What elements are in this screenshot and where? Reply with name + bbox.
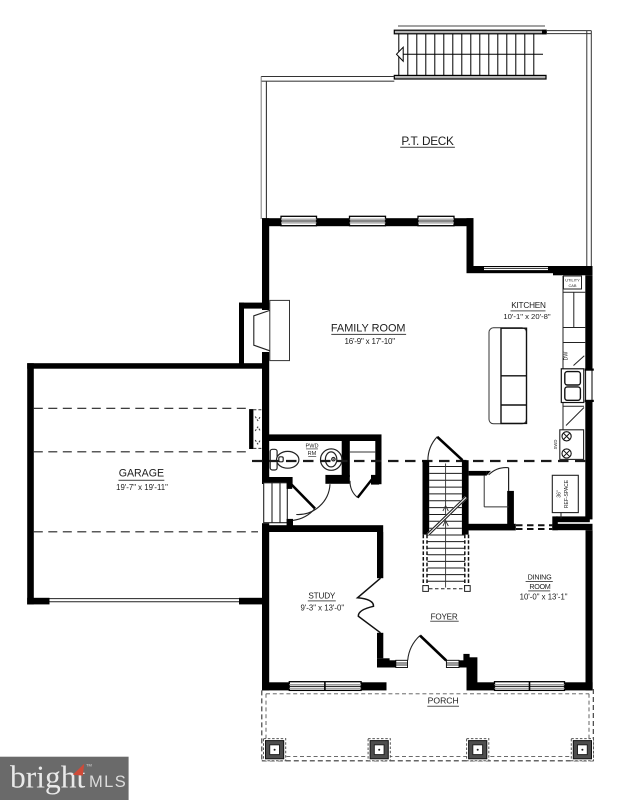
svg-text:PORCH: PORCH: [428, 696, 459, 706]
svg-text:P.T. DECK: P.T. DECK: [401, 134, 454, 148]
svg-text:bright: bright: [10, 760, 85, 795]
svg-text:19'-7" x 19'-11": 19'-7" x 19'-11": [116, 483, 168, 492]
svg-text:ROOM: ROOM: [529, 582, 550, 591]
svg-text:36": 36": [557, 490, 563, 498]
svg-text:10'-1" x 20'-8": 10'-1" x 20'-8": [503, 312, 551, 321]
svg-text:MLS: MLS: [89, 773, 127, 791]
svg-text:SWD: SWD: [553, 440, 558, 450]
svg-text:10'-0" x 13'-1": 10'-0" x 13'-1": [520, 593, 568, 602]
svg-text:FAMILY ROOM: FAMILY ROOM: [331, 322, 406, 334]
svg-text:PWD: PWD: [305, 443, 318, 449]
svg-text:™: ™: [86, 764, 93, 771]
svg-text:FOYER: FOYER: [431, 612, 458, 621]
svg-text:DINING: DINING: [528, 573, 553, 582]
svg-text:REF-SPACE: REF-SPACE: [564, 479, 570, 508]
svg-text:16'-9" x 17'-10": 16'-9" x 17'-10": [344, 337, 395, 346]
svg-text:9'-3" x 13'-0": 9'-3" x 13'-0": [300, 604, 344, 613]
svg-text:KITCHEN: KITCHEN: [511, 301, 546, 310]
svg-text:DW: DW: [564, 352, 570, 361]
svg-text:STUDY: STUDY: [308, 591, 335, 600]
svg-text:GARAGE: GARAGE: [119, 468, 164, 480]
svg-text:CAB: CAB: [569, 283, 577, 288]
